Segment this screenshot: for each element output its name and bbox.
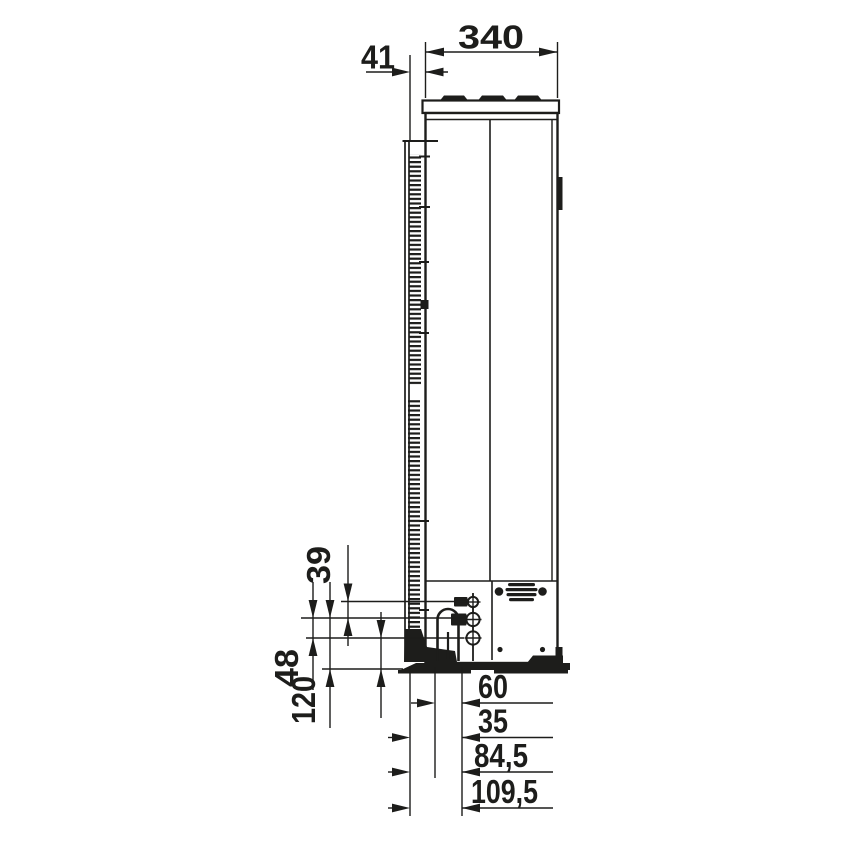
fin-block-lower — [408, 399, 420, 641]
dimension-60: 60 — [411, 668, 553, 707]
dimension-35: 35 — [388, 703, 553, 742]
arrowhead-up — [377, 669, 386, 687]
arrowhead-right — [417, 699, 435, 708]
arrowhead-left — [426, 48, 445, 57]
arrowhead-right — [392, 733, 410, 742]
arrowhead-right — [539, 48, 558, 57]
dimension-340: 340 — [426, 19, 558, 99]
dim-label-84-5: 84,5 — [474, 737, 528, 774]
dim-label-39: 39 — [300, 546, 337, 584]
dimension-109-5: 109,5 — [388, 773, 553, 812]
panel-screw-right — [540, 647, 545, 652]
arrowhead-up — [344, 618, 353, 636]
fin-block-upper — [409, 154, 422, 386]
side-handle — [558, 177, 563, 210]
dim-label-41: 41 — [361, 39, 395, 76]
arrowhead-down — [344, 584, 353, 602]
arrowhead-down — [309, 600, 318, 618]
dimensions-bottom: 60 35 84,5 109,5 — [388, 667, 553, 816]
arrowhead-right — [392, 768, 410, 777]
dim-label-60: 60 — [478, 668, 508, 705]
valve-b — [451, 614, 467, 626]
arrowhead-right — [392, 804, 410, 813]
dim-label-120: 120 — [285, 676, 322, 724]
cabinet — [423, 96, 563, 664]
arrowhead-down — [326, 600, 335, 618]
drawing-canvas: 340 41 39 48 — [0, 0, 850, 850]
arrowhead-left — [426, 68, 444, 77]
arrowhead-up — [326, 669, 335, 687]
dim-label-109-5: 109,5 — [471, 773, 538, 810]
top-cap — [423, 101, 560, 114]
dim-label-340: 340 — [458, 19, 524, 56]
foot-tab-right — [556, 647, 563, 656]
dimension-drawing: 340 41 39 48 — [0, 0, 850, 850]
arrowhead-down — [377, 620, 386, 638]
dimension-84-5: 84,5 — [388, 737, 553, 776]
dimension-48: 48 — [268, 582, 317, 690]
foot-bracket-right — [527, 656, 563, 664]
arrowhead-up — [309, 638, 318, 656]
panel-screw-left — [497, 647, 502, 652]
dimension-39: 39 — [300, 545, 352, 646]
dimension-aux — [377, 612, 386, 718]
top-hinge-pads — [440, 96, 542, 101]
dim-label-35: 35 — [478, 703, 508, 740]
